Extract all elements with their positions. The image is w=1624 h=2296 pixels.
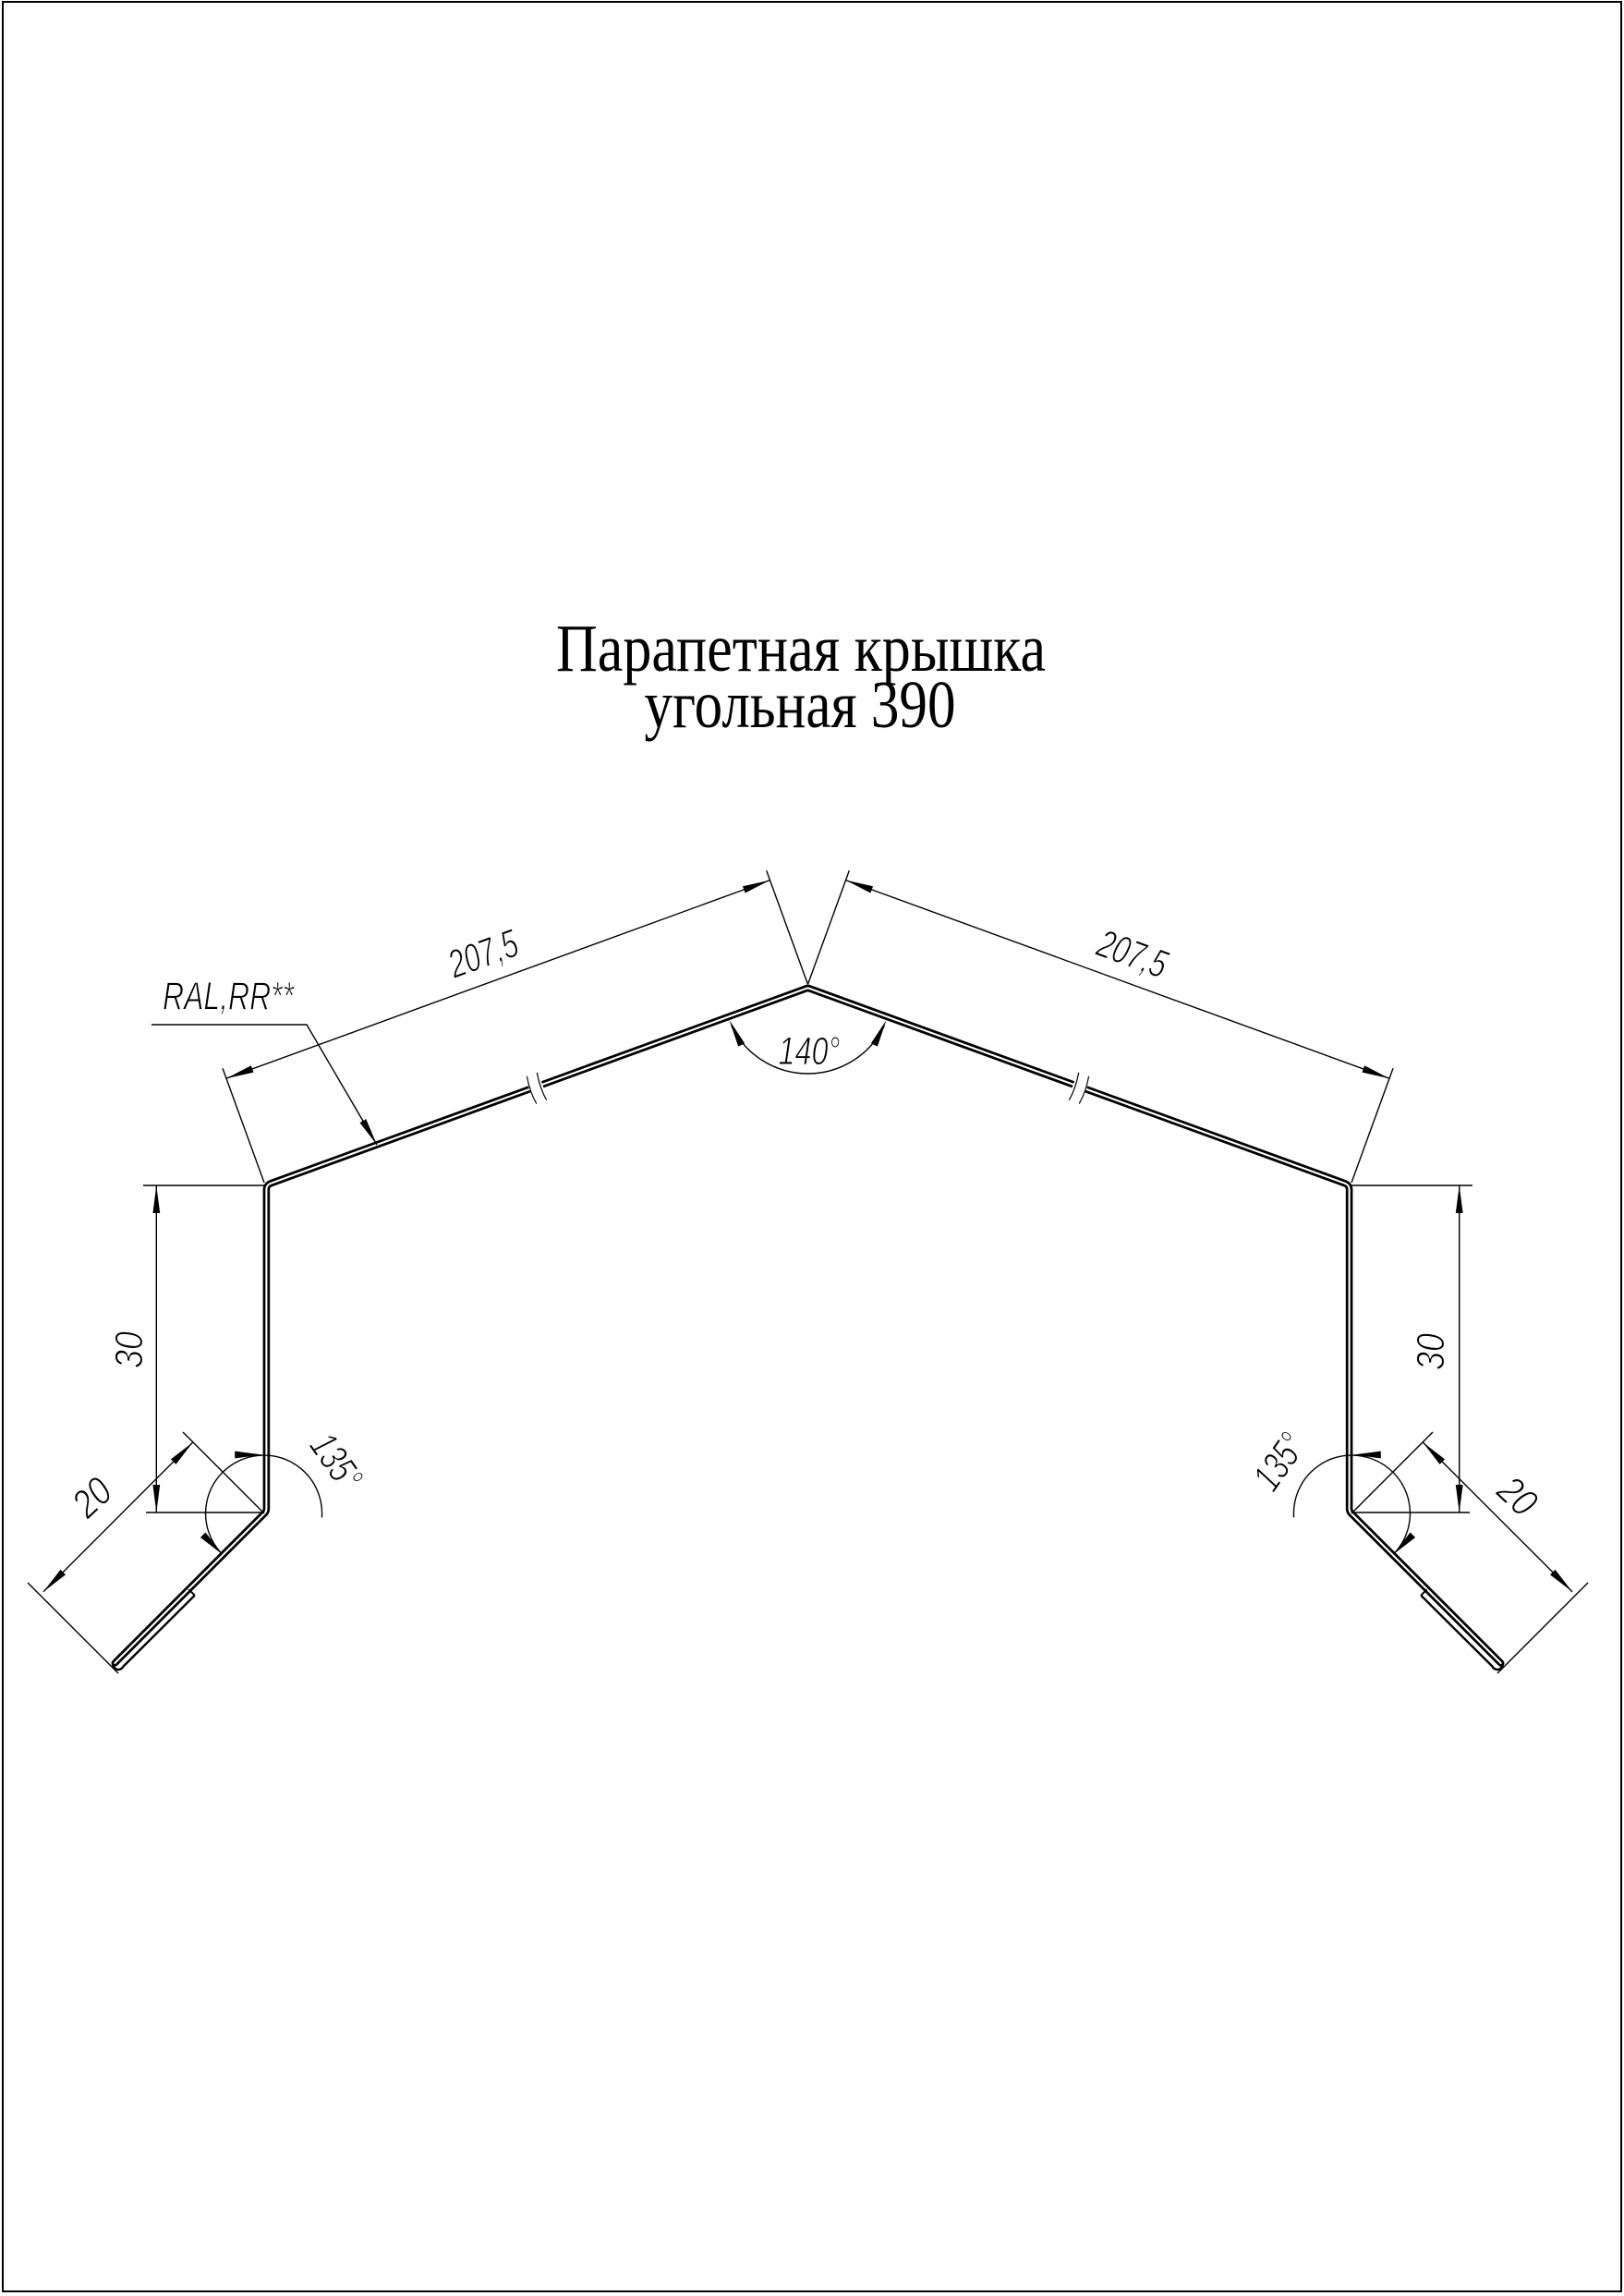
svg-text:RAL,RR**: RAL,RR** [163, 975, 295, 1019]
svg-text:140°: 140° [779, 1029, 841, 1074]
svg-text:угольная 390: угольная 390 [645, 667, 956, 742]
svg-text:30: 30 [1409, 1333, 1453, 1370]
svg-text:30: 30 [107, 1331, 151, 1368]
